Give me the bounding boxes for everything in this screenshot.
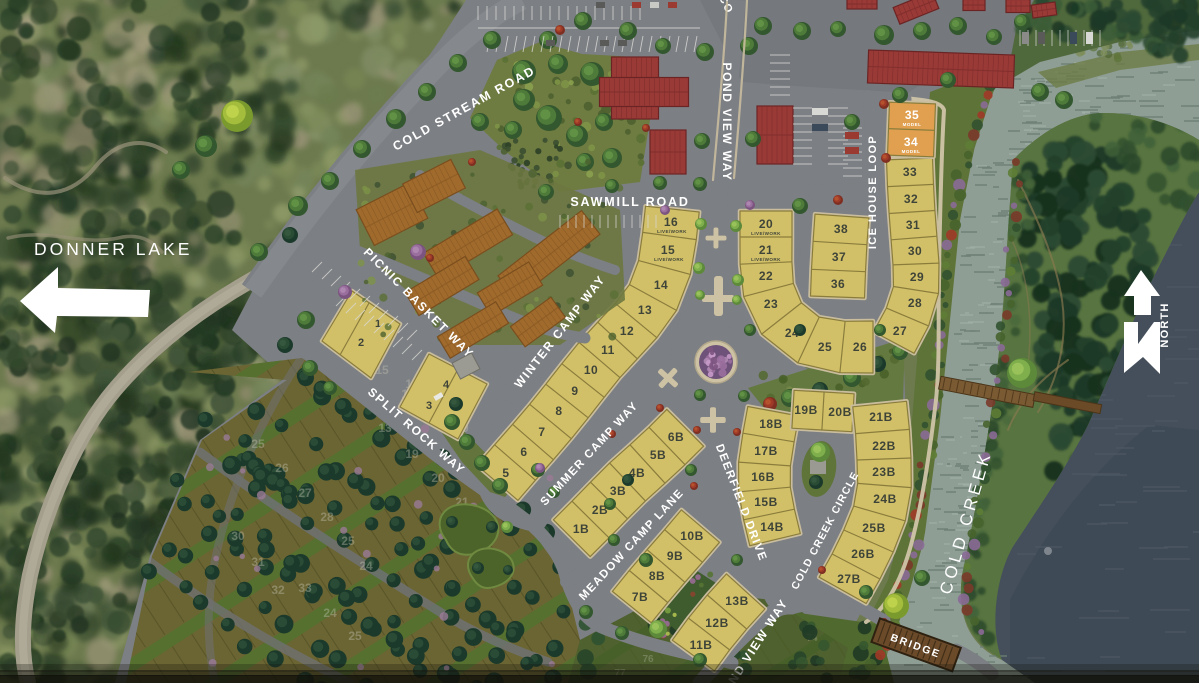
svg-text:14: 14 — [654, 278, 668, 292]
svg-text:7: 7 — [538, 425, 545, 439]
svg-text:13B: 13B — [725, 594, 749, 608]
svg-text:38: 38 — [834, 222, 848, 236]
svg-text:2: 2 — [358, 337, 366, 349]
svg-text:32: 32 — [271, 583, 285, 597]
svg-text:13: 13 — [638, 303, 652, 317]
svg-text:18B: 18B — [759, 417, 783, 431]
svg-text:20: 20 — [431, 471, 445, 485]
svg-text:17B: 17B — [754, 444, 778, 458]
svg-text:16: 16 — [664, 215, 678, 229]
svg-text:MODEL: MODEL — [902, 149, 921, 154]
svg-text:28: 28 — [320, 510, 334, 524]
svg-text:20B: 20B — [828, 405, 852, 419]
svg-text:25: 25 — [341, 534, 355, 548]
svg-text:19: 19 — [405, 447, 419, 461]
svg-text:23: 23 — [764, 297, 778, 311]
svg-text:25: 25 — [251, 437, 265, 451]
svg-text:15B: 15B — [754, 495, 778, 509]
svg-text:22: 22 — [759, 269, 773, 283]
svg-text:29: 29 — [910, 270, 924, 284]
svg-text:15: 15 — [661, 243, 675, 257]
svg-text:12B: 12B — [705, 616, 729, 630]
svg-text:33: 33 — [903, 165, 917, 179]
svg-text:37: 37 — [832, 250, 846, 264]
svg-text:35: 35 — [905, 108, 919, 122]
svg-text:20: 20 — [759, 217, 773, 231]
svg-text:9B: 9B — [667, 549, 683, 563]
svg-text:9: 9 — [571, 384, 578, 398]
svg-text:3B: 3B — [610, 484, 626, 498]
svg-text:25: 25 — [348, 629, 362, 643]
svg-text:31: 31 — [251, 555, 265, 569]
svg-text:33: 33 — [298, 581, 312, 595]
svg-text:23B: 23B — [872, 465, 896, 479]
svg-text:8B: 8B — [649, 569, 665, 583]
svg-text:6: 6 — [520, 445, 527, 459]
svg-text:LIVE/WORK: LIVE/WORK — [751, 231, 781, 236]
svg-text:16B: 16B — [751, 470, 775, 484]
svg-text:11B: 11B — [690, 638, 713, 652]
svg-text:DONNER LAKE: DONNER LAKE — [34, 239, 192, 259]
svg-text:14B: 14B — [760, 520, 784, 534]
svg-text:28: 28 — [908, 296, 922, 310]
svg-text:27B: 27B — [837, 572, 861, 586]
svg-text:8: 8 — [555, 404, 562, 418]
svg-text:26B: 26B — [851, 547, 875, 561]
svg-text:27: 27 — [298, 486, 312, 500]
svg-text:5: 5 — [502, 466, 509, 480]
svg-text:30: 30 — [908, 244, 922, 258]
svg-text:26: 26 — [853, 340, 867, 354]
svg-text:25B: 25B — [862, 521, 886, 535]
svg-text:5B: 5B — [650, 448, 666, 462]
svg-text:30: 30 — [231, 529, 245, 543]
svg-text:24B: 24B — [873, 492, 897, 506]
svg-text:36: 36 — [831, 277, 845, 291]
svg-text:26: 26 — [275, 461, 289, 475]
svg-text:27: 27 — [893, 324, 907, 338]
svg-text:76: 76 — [642, 654, 654, 665]
svg-text:1B: 1B — [573, 522, 589, 536]
svg-text:MODEL: MODEL — [903, 122, 922, 127]
svg-text:21: 21 — [759, 243, 773, 257]
svg-text:19B: 19B — [794, 403, 818, 417]
svg-text:6B: 6B — [668, 430, 684, 444]
svg-text:POND VIEW WAY: POND VIEW WAY — [720, 62, 734, 181]
svg-text:12: 12 — [620, 324, 634, 338]
svg-text:LIVE/WORK: LIVE/WORK — [751, 257, 781, 262]
svg-text:4: 4 — [443, 379, 451, 391]
svg-text:LIVE/WORK: LIVE/WORK — [654, 257, 684, 262]
svg-text:10: 10 — [584, 363, 598, 377]
svg-text:24: 24 — [359, 559, 373, 573]
svg-text:25: 25 — [818, 340, 832, 354]
svg-text:32: 32 — [904, 192, 918, 206]
svg-text:34: 34 — [904, 135, 918, 149]
svg-text:3: 3 — [426, 400, 434, 412]
svg-text:ICE HOUSE LOOP: ICE HOUSE LOOP — [867, 135, 879, 249]
svg-text:22B: 22B — [872, 439, 896, 453]
svg-text:31: 31 — [906, 218, 920, 232]
svg-text:NORTH: NORTH — [1159, 302, 1171, 347]
svg-text:10B: 10B — [680, 529, 704, 543]
svg-text:SAWMILL ROAD: SAWMILL ROAD — [570, 195, 689, 209]
svg-text:7B: 7B — [632, 590, 648, 604]
svg-text:24: 24 — [323, 606, 337, 620]
svg-text:LIVE/WORK: LIVE/WORK — [657, 229, 687, 234]
svg-text:11: 11 — [601, 343, 615, 357]
svg-text:21B: 21B — [869, 410, 893, 424]
